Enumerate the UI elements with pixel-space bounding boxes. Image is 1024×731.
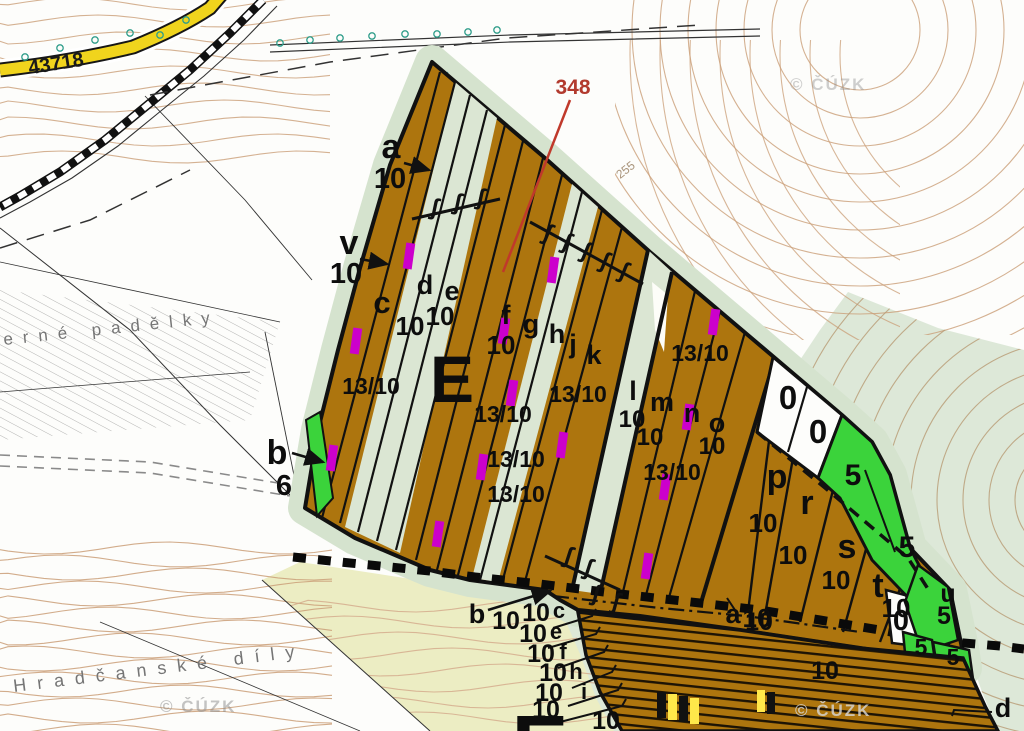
parcel-label: 13/10 xyxy=(549,381,607,407)
parcel-label: b xyxy=(267,434,288,472)
parcel-label: d xyxy=(995,693,1012,723)
parcel-label: 0 xyxy=(809,413,827,450)
parcel-label: 10 xyxy=(822,565,851,595)
callout-348-label: 348 xyxy=(555,76,590,99)
parcel-label: 5 xyxy=(947,644,960,670)
parcel-label: h xyxy=(549,319,566,349)
parcel-label: 13/10 xyxy=(643,459,701,485)
parcel-label: 13/10 xyxy=(487,446,545,472)
cadastral-map-canvas[interactable]: ʃʃʃʃʃʃʃʃʃʃʃʃ a10v10cde101013/10f10ghjk13… xyxy=(0,0,1024,731)
map-svg: ʃʃʃʃʃʃʃʃʃʃʃʃ a10v10cde101013/10f10ghjk13… xyxy=(0,0,1024,731)
parcel-label: 10 xyxy=(637,424,664,451)
parcel-label: 0 xyxy=(779,379,797,416)
parcel-label: a xyxy=(382,128,402,166)
parcel-label: 13/10 xyxy=(487,481,545,507)
parcel-label: l xyxy=(629,376,637,406)
parcel-label: 13/10 xyxy=(474,401,532,427)
parcel-label: b xyxy=(469,599,486,629)
parcel-label: 0 xyxy=(893,605,909,637)
parcel-label: f xyxy=(502,300,512,330)
parcel-label: 10 xyxy=(330,258,362,290)
parcel-label: k xyxy=(586,340,602,370)
parcel-label: 10 xyxy=(699,433,726,460)
parcel-label: r xyxy=(800,484,813,522)
parcel-label: 5 xyxy=(915,634,928,660)
parcel-label: j xyxy=(568,329,577,359)
parcel-label: i xyxy=(581,679,587,704)
parcel-label: 10 xyxy=(811,657,839,685)
copyright-watermark: © ČÚZK xyxy=(790,75,866,94)
parcel-label: 10 xyxy=(745,608,773,636)
parcel-label: n xyxy=(684,398,701,428)
parcel-label: c xyxy=(373,285,390,320)
zone-label-bottom: E xyxy=(512,699,569,731)
parcel-label: 10 xyxy=(426,301,455,331)
parcel-label: p xyxy=(767,458,788,496)
parcel-label: 10 xyxy=(374,163,406,195)
copyright-watermark: © ČÚZK xyxy=(795,701,871,720)
parcel-label: 5 xyxy=(937,602,951,630)
parcel-label: 10 xyxy=(396,311,425,341)
parcel-label: 10 xyxy=(749,508,778,538)
parcel-label: 13/10 xyxy=(342,373,400,399)
parcel-label: 10 xyxy=(592,707,620,731)
parcel-label: 5 xyxy=(899,531,916,564)
parcel-label: m xyxy=(650,387,674,417)
parcel-label: v xyxy=(340,224,359,262)
copyright-watermark: © ČÚZK xyxy=(160,697,236,716)
parcel-label: 13/10 xyxy=(671,340,729,366)
parcel-label: g xyxy=(523,309,540,339)
parcel-label: 6 xyxy=(276,470,292,502)
parcel-label: s xyxy=(838,528,857,566)
parcel-label: 5 xyxy=(845,459,862,492)
parcel-label: a xyxy=(725,599,741,629)
parcel-label: d xyxy=(417,270,434,300)
parcel-label: 10 xyxy=(487,330,516,360)
parcel-label: 10 xyxy=(492,607,520,635)
zone-label-main: E xyxy=(430,342,474,416)
parcel-label: 10 xyxy=(779,540,808,570)
